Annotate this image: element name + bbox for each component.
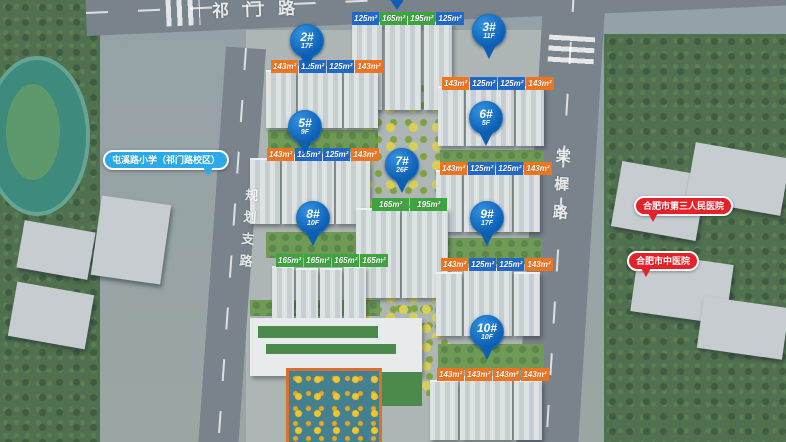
pin-head: 5# 9F (288, 110, 322, 144)
building-6-tower-c (514, 170, 540, 232)
unit-tag: 125m² (468, 162, 495, 175)
pin-floors: 10F (307, 220, 319, 228)
pin-building-1-tip (389, 0, 405, 10)
unit-tag: 125m² (327, 60, 354, 73)
kindergarten-playground (286, 368, 382, 442)
pin-building-10[interactable]: 10# 10F (470, 315, 504, 360)
pin-tail-icon (480, 232, 494, 246)
unit-tag: 125m² (469, 258, 496, 271)
unit-tag: 125m² (496, 162, 523, 175)
pin-building-6[interactable]: 6# 5F (469, 101, 503, 146)
pin-label: 9# (480, 208, 493, 220)
pin-label: 7# (395, 155, 408, 167)
poi-hospital-2-text: 合肥市中医院 (636, 256, 690, 266)
unit-tag: 165m² (380, 12, 407, 25)
pin-label: 8# (306, 208, 319, 220)
building-2-tower-c (344, 70, 378, 128)
pin-tail-icon (298, 141, 312, 155)
pin-head: 3# 11F (472, 14, 506, 48)
pin-label: 10# (477, 322, 497, 334)
pin-building-3[interactable]: 3# 11F (472, 14, 506, 59)
unit-tags-building-2: 143m² 125m² 125m² 143m² (271, 60, 383, 73)
unit-tag: 143m² (526, 77, 553, 90)
building-9-tower-c (514, 272, 540, 336)
pin-building-5[interactable]: 5# 9F (288, 110, 322, 155)
pin-floors: 11F (483, 33, 495, 41)
pin-head: 6# 5F (469, 101, 503, 135)
pin-building-9[interactable]: 9# 17F (470, 201, 504, 246)
poi-school-text: 屯溪路小学（祁门路校区） (112, 155, 220, 165)
poi-hospital-1-label: 合肥市第三人民医院 (634, 196, 733, 216)
pin-floors: 5F (482, 120, 490, 128)
unit-tag: 143m² (525, 258, 552, 271)
poi-school-label: 屯溪路小学（祁门路校区） (103, 150, 229, 170)
unit-tag: 143m² (524, 162, 551, 175)
unit-tag: 125m² (497, 258, 524, 271)
unit-tags-building-10: 143m² 143m² 143m² 143m² (437, 368, 549, 381)
unit-tag: 143m² (351, 148, 378, 161)
unit-tag: 125m² (436, 12, 463, 25)
pin-label: 5# (298, 117, 311, 129)
school-building-left-3 (91, 196, 171, 285)
unit-tag: 165m² (276, 254, 303, 267)
road-label-right: 棠樨路 (548, 148, 573, 233)
pin-floors: 10F (481, 334, 493, 342)
pin-tail-icon (306, 232, 320, 246)
unit-tags-building-7: 165m² 195m² (372, 198, 447, 211)
pin-head: 8# 10F (296, 201, 330, 235)
unit-tag: 143m² (440, 162, 467, 175)
building-8-tower-b (296, 268, 318, 324)
pin-floors: 17F (301, 43, 313, 51)
pin-tail-icon (395, 179, 409, 193)
unit-tag: 165m² (372, 198, 409, 211)
unit-tag: 165m² (332, 254, 359, 267)
pin-head: 7# 26F (385, 148, 419, 182)
pin-tail-icon (300, 55, 314, 69)
unit-tag: 125m² (498, 77, 525, 90)
poi-hospital-1-text: 合肥市第三人民医院 (643, 201, 724, 211)
unit-tags-building-5: 143m² 125m² 125m² 143m² (267, 148, 379, 161)
pin-floors: 9F (301, 129, 309, 137)
unit-tag: 143m² (355, 60, 382, 73)
unit-tag: 125m² (323, 148, 350, 161)
unit-tag: 143m² (437, 368, 464, 381)
pin-floors: 17F (481, 220, 493, 228)
building-10-tower-a (430, 380, 458, 440)
aerial-site-plan: 祁门路 规划支路 棠樨路 125m² 165m² 195m² 125m² 143… (0, 0, 786, 442)
pointer-icon (648, 213, 658, 222)
unit-tag: 143m² (465, 368, 492, 381)
unit-tags-building-6: 143m² 125m² 125m² 143m² (440, 162, 552, 175)
pointer-icon (203, 167, 213, 176)
pin-head: 2# 17F (290, 24, 324, 58)
road-label-top: 祁门路 (212, 0, 312, 22)
building-10-tower-b (460, 376, 512, 440)
pin-building-2[interactable]: 2# 17F (290, 24, 324, 69)
unit-tag: 195m² (408, 12, 435, 25)
stadium-infield (6, 84, 60, 180)
pin-label: 3# (482, 21, 495, 33)
kindergarten-green-roof-2 (266, 344, 396, 354)
pin-floors: 26F (396, 167, 408, 175)
unit-tag: 143m² (493, 368, 520, 381)
pin-head: 10# 10F (470, 315, 504, 349)
pin-head: 9# 17F (470, 201, 504, 235)
poi-hospital-2-label: 合肥市中医院 (627, 251, 699, 271)
kindergarten-green-roof-1 (258, 326, 378, 338)
building-1-tower-b (385, 16, 421, 110)
unit-tags-building-9: 143m² 125m² 125m² 143m² (441, 258, 553, 271)
pin-label: 2# (300, 31, 313, 43)
pin-tail-icon (479, 132, 493, 146)
building-9-tower-a (436, 272, 462, 336)
building-8-tower-a (272, 266, 294, 324)
pin-building-8[interactable]: 8# 10F (296, 201, 330, 246)
unit-tag: 143m² (442, 77, 469, 90)
building-3-tower-c (516, 86, 544, 146)
unit-tag: 125m² (352, 12, 379, 25)
unit-tag: 195m² (410, 198, 447, 211)
unit-tag: 165m² (360, 254, 387, 267)
pin-building-7[interactable]: 7# 26F (385, 148, 419, 193)
building-8-tower-d (344, 266, 366, 324)
pin-tail-icon (482, 45, 496, 59)
unit-tag: 125m² (470, 77, 497, 90)
pointer-icon (641, 268, 651, 277)
unit-tag: 165m² (304, 254, 331, 267)
kindergarten-court (382, 372, 422, 406)
unit-tags-building-1: 125m² 165m² 195m² 125m² (352, 12, 464, 25)
pin-label: 6# (479, 108, 492, 120)
unit-tags-building-3: 143m² 125m² 125m² 143m² (442, 77, 554, 90)
building-3-tower-a (438, 86, 464, 146)
unit-tag: 143m² (521, 368, 548, 381)
building-10-tower-c (514, 380, 542, 440)
building-8-tower-c (320, 268, 342, 324)
pin-tail-icon (480, 346, 494, 360)
unit-tags-building-8: 165m² 165m² 165m² 165m² (276, 254, 388, 267)
unit-tag: 143m² (441, 258, 468, 271)
